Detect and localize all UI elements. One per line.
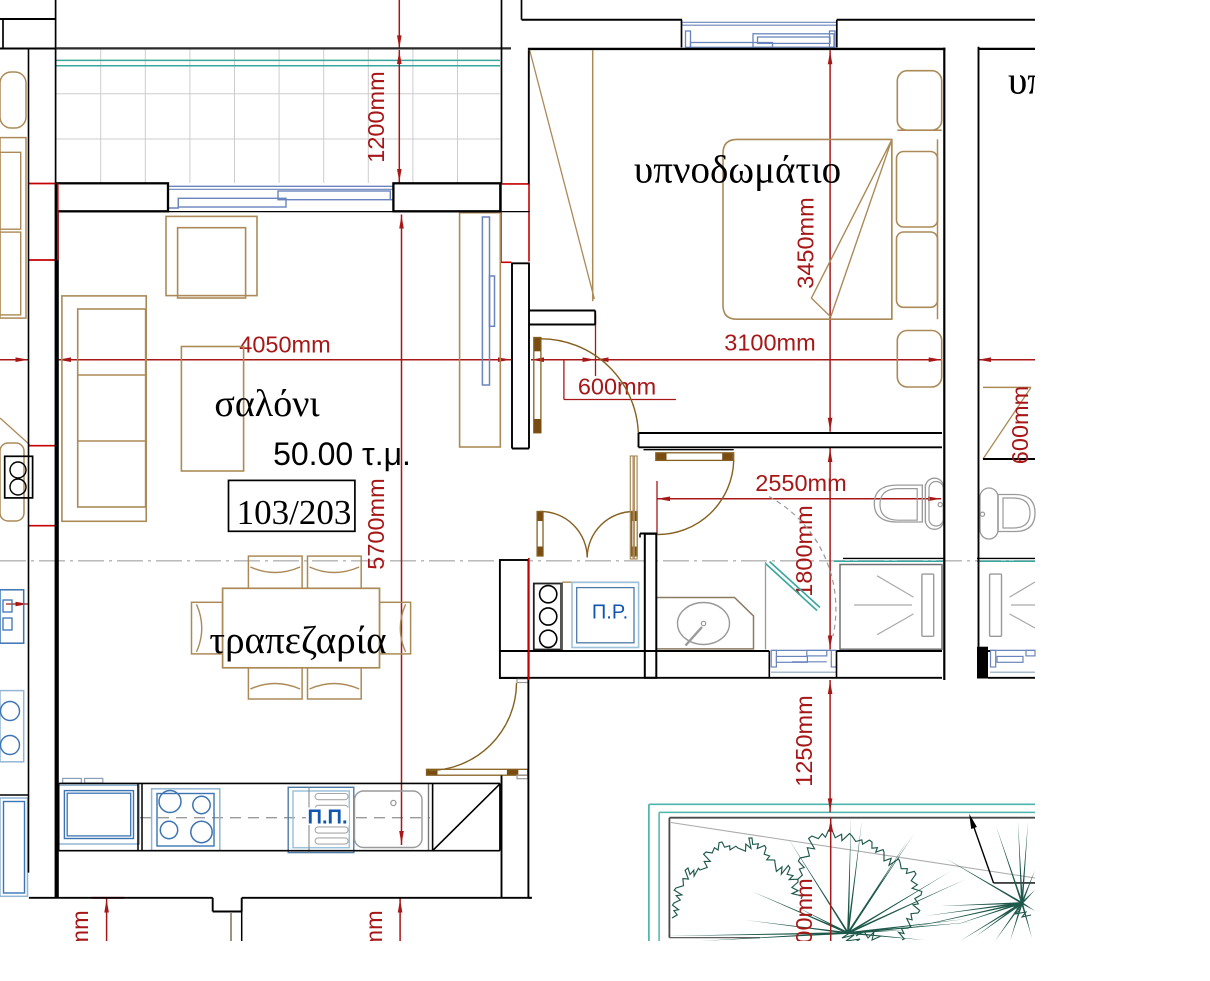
svg-text:50.00 τ.μ.: 50.00 τ.μ. [273, 436, 411, 472]
svg-text:103/203: 103/203 [237, 493, 352, 532]
svg-text:σαλόνι: σαλόνι [214, 383, 320, 425]
svg-text:τραπεζαρία: τραπεζαρία [209, 619, 386, 662]
svg-text:4050mm: 4050mm [239, 332, 330, 358]
svg-text:600mm: 600mm [578, 374, 656, 400]
svg-text:3100mm: 3100mm [724, 330, 815, 356]
svg-text:1200mm: 1200mm [363, 71, 389, 162]
svg-text:2550mm: 2550mm [755, 470, 846, 496]
svg-text:1250mm: 1250mm [791, 695, 817, 786]
svg-text:Π.Ρ.: Π.Ρ. [592, 602, 628, 624]
svg-text:5700mm: 5700mm [363, 478, 389, 569]
svg-text:600mm: 600mm [1007, 386, 1033, 464]
svg-text:1800mm: 1800mm [791, 505, 817, 596]
svg-text:3450mm: 3450mm [793, 197, 819, 288]
svg-text:υπνοδωμάτιο: υπνοδωμάτιο [634, 149, 841, 192]
svg-text:Π.Π.: Π.Π. [308, 807, 348, 829]
